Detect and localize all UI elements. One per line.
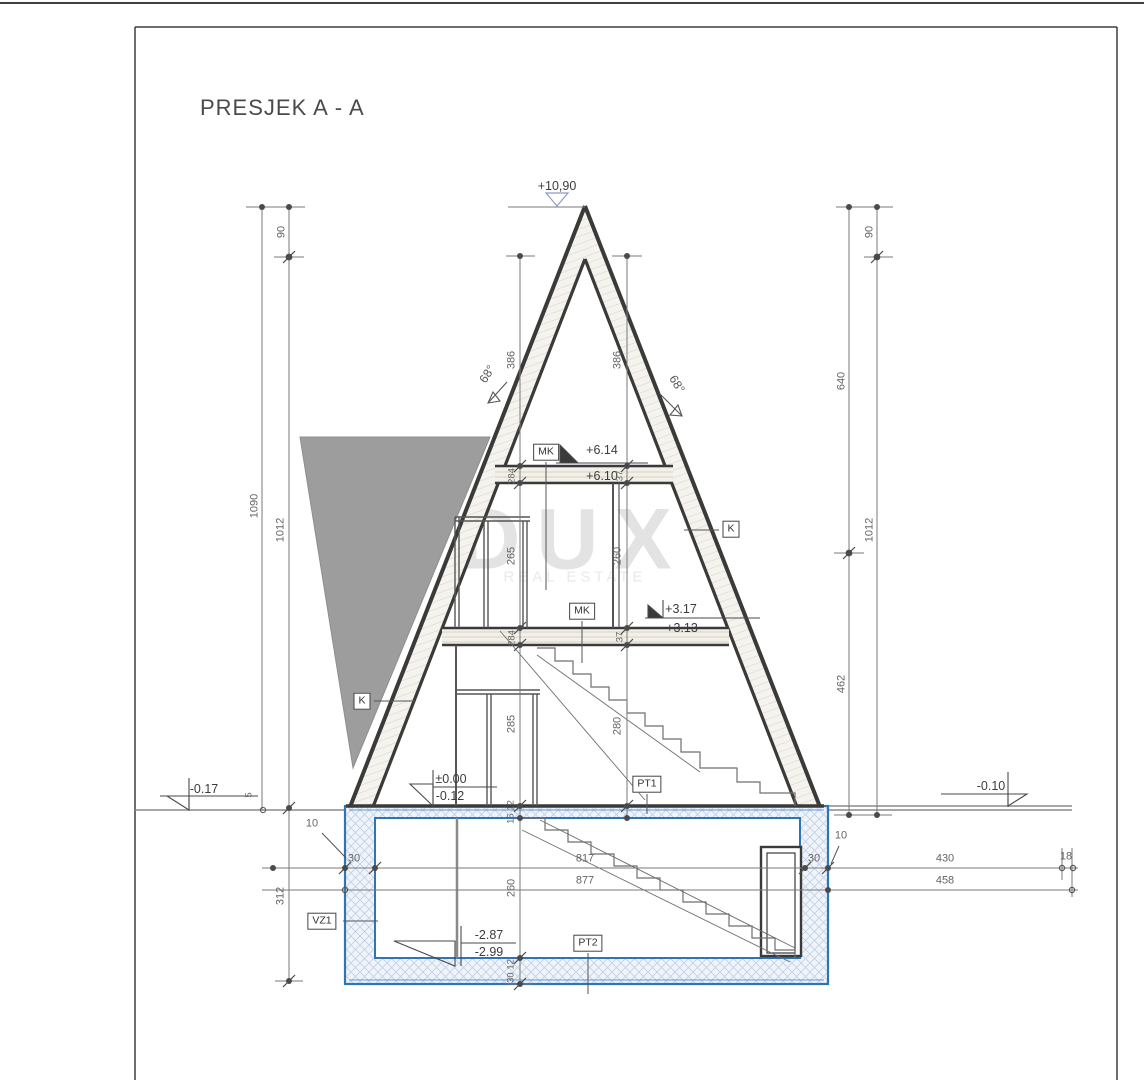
elevation-apex: +10,90 bbox=[538, 180, 577, 193]
dim-458: 458 bbox=[936, 876, 954, 887]
dim-312: 312 bbox=[276, 887, 287, 905]
tag-k-left: K bbox=[353, 693, 370, 710]
ground-floor-door bbox=[455, 645, 540, 806]
elevation-mid-top: +3.17 bbox=[665, 603, 697, 616]
basement-door bbox=[761, 847, 801, 956]
drawing-title: PRESJEK A - A bbox=[200, 95, 365, 121]
tag-pt1: PT1 bbox=[632, 776, 661, 793]
dim-90-left: 90 bbox=[277, 226, 288, 238]
elevation-basement-bottom: -2.99 bbox=[475, 946, 504, 959]
section-drawing bbox=[0, 0, 1144, 1080]
elevation-terrain-left: -0.17 bbox=[190, 783, 219, 796]
elevation-basement-top: -2.87 bbox=[475, 929, 504, 942]
tag-pt2: PT2 bbox=[573, 935, 602, 952]
dim-284-lower: 284 bbox=[507, 630, 517, 646]
dim-877: 877 bbox=[576, 876, 594, 887]
dim-260-basement: 260 bbox=[507, 879, 518, 897]
dim-18: 18 bbox=[1060, 852, 1072, 863]
dim-10-right: 10 bbox=[835, 831, 847, 842]
tag-vz1: VZ1 bbox=[307, 913, 336, 930]
dim-30-wall-left: 30 bbox=[348, 854, 360, 865]
dim-280: 280 bbox=[613, 717, 624, 735]
dim-265: 265 bbox=[507, 547, 518, 565]
elevation-upper-top: +6.14 bbox=[586, 444, 618, 457]
dim-1090: 1090 bbox=[250, 494, 261, 518]
elevation-mid-bottom: +3.13 bbox=[666, 622, 698, 635]
dim-260-middle: 260 bbox=[613, 547, 624, 565]
drawing-sheet: DUX REAL ESTATE bbox=[0, 0, 1144, 1080]
dim-90-right: 90 bbox=[865, 226, 876, 238]
basement-shell bbox=[345, 806, 828, 984]
dim-386-left: 386 bbox=[507, 351, 518, 369]
elevation-ground-bottom: -0.12 bbox=[436, 790, 465, 803]
dim-30-12: 30 12 bbox=[506, 959, 516, 983]
tag-k-right: K bbox=[722, 521, 739, 538]
sheet-border bbox=[0, 3, 1144, 1080]
dim-462: 462 bbox=[837, 675, 848, 693]
tag-mk-upper: MK bbox=[533, 444, 559, 461]
elevation-ground-top: ±0.00 bbox=[435, 773, 466, 786]
elevation-markers bbox=[160, 193, 1027, 966]
dim-1012-right: 1012 bbox=[865, 518, 876, 542]
dim-15-12: 15 12 bbox=[506, 800, 516, 824]
dim-37-upper: 37 bbox=[615, 471, 625, 482]
dim-10-left: 10 bbox=[306, 819, 318, 830]
dim-386-right: 386 bbox=[613, 351, 624, 369]
dim-30-wall-right: 30 bbox=[808, 854, 820, 865]
dim-430: 430 bbox=[936, 854, 954, 865]
elevation-terrain-right: -0.10 bbox=[977, 780, 1006, 793]
dim-5: 5 bbox=[244, 792, 254, 797]
dim-640: 640 bbox=[837, 372, 848, 390]
dim-285: 285 bbox=[507, 715, 518, 733]
dim-1012-left: 1012 bbox=[276, 518, 287, 542]
dim-284-upper: 284 bbox=[507, 468, 517, 484]
elevation-upper-bottom: +6.10 bbox=[586, 470, 618, 483]
tag-mk-middle: MK bbox=[569, 603, 595, 620]
dim-817: 817 bbox=[576, 854, 594, 865]
dim-37-lower: 37 bbox=[615, 632, 625, 643]
